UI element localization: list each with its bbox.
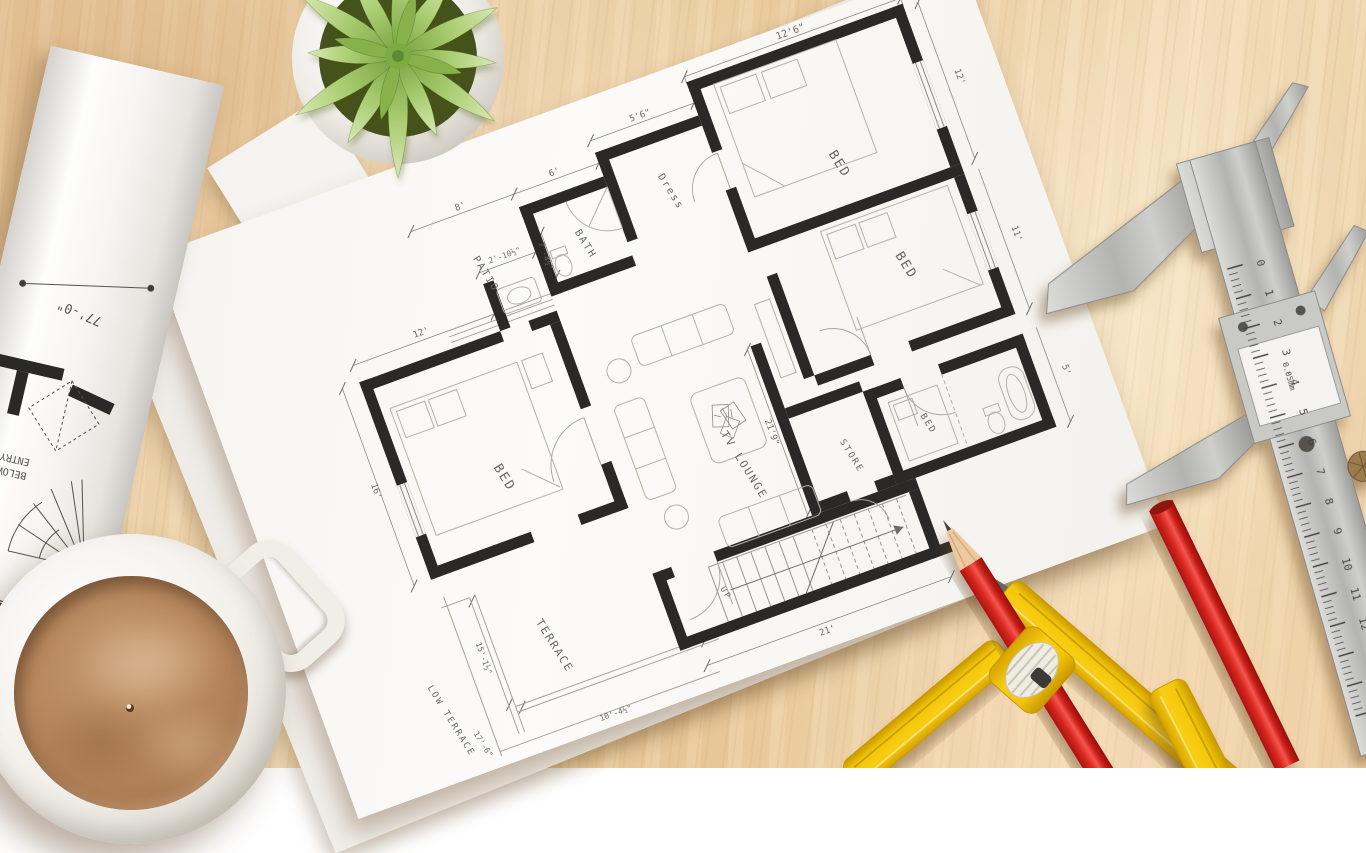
plan-text: 16' <box>368 482 383 501</box>
plan-text: 11' <box>1009 224 1024 243</box>
plan-text: 5' <box>1059 363 1072 377</box>
plan-text: TERRACE <box>533 617 576 675</box>
roll-dim-text: 77'-0" <box>55 296 104 328</box>
plan-text: 5'6" <box>628 108 652 125</box>
succulent-core <box>392 50 404 62</box>
plan-text: BATH <box>572 228 598 261</box>
plan-text: BED <box>490 461 518 494</box>
plan-text: 12' <box>951 68 966 87</box>
coffee-bubble <box>126 704 134 712</box>
plan-text: LOW TERRACE <box>425 684 477 759</box>
coffee-cup <box>0 528 336 848</box>
plan-text: 2'-10½" <box>487 245 522 266</box>
plan-text: Dress <box>655 172 686 212</box>
plan-text: 21' <box>818 624 837 639</box>
plan-text: STORE <box>837 438 865 475</box>
roll-dim-line <box>19 256 154 315</box>
plan-text: BED <box>825 148 853 181</box>
plan-text: 17'-6" <box>472 730 495 759</box>
plan-text: TV LOUNGE <box>718 429 770 502</box>
plan-text: 10'-4½" <box>598 702 633 723</box>
coffee-surface <box>14 576 248 810</box>
succulent-plant <box>272 0 536 214</box>
coffee-swirl <box>134 704 244 788</box>
plan-text: BED <box>918 412 938 436</box>
roll-dotted <box>21 373 107 459</box>
plan-text: BED <box>892 249 920 282</box>
roll-entry-text-1: ENTRY <box>0 450 31 467</box>
